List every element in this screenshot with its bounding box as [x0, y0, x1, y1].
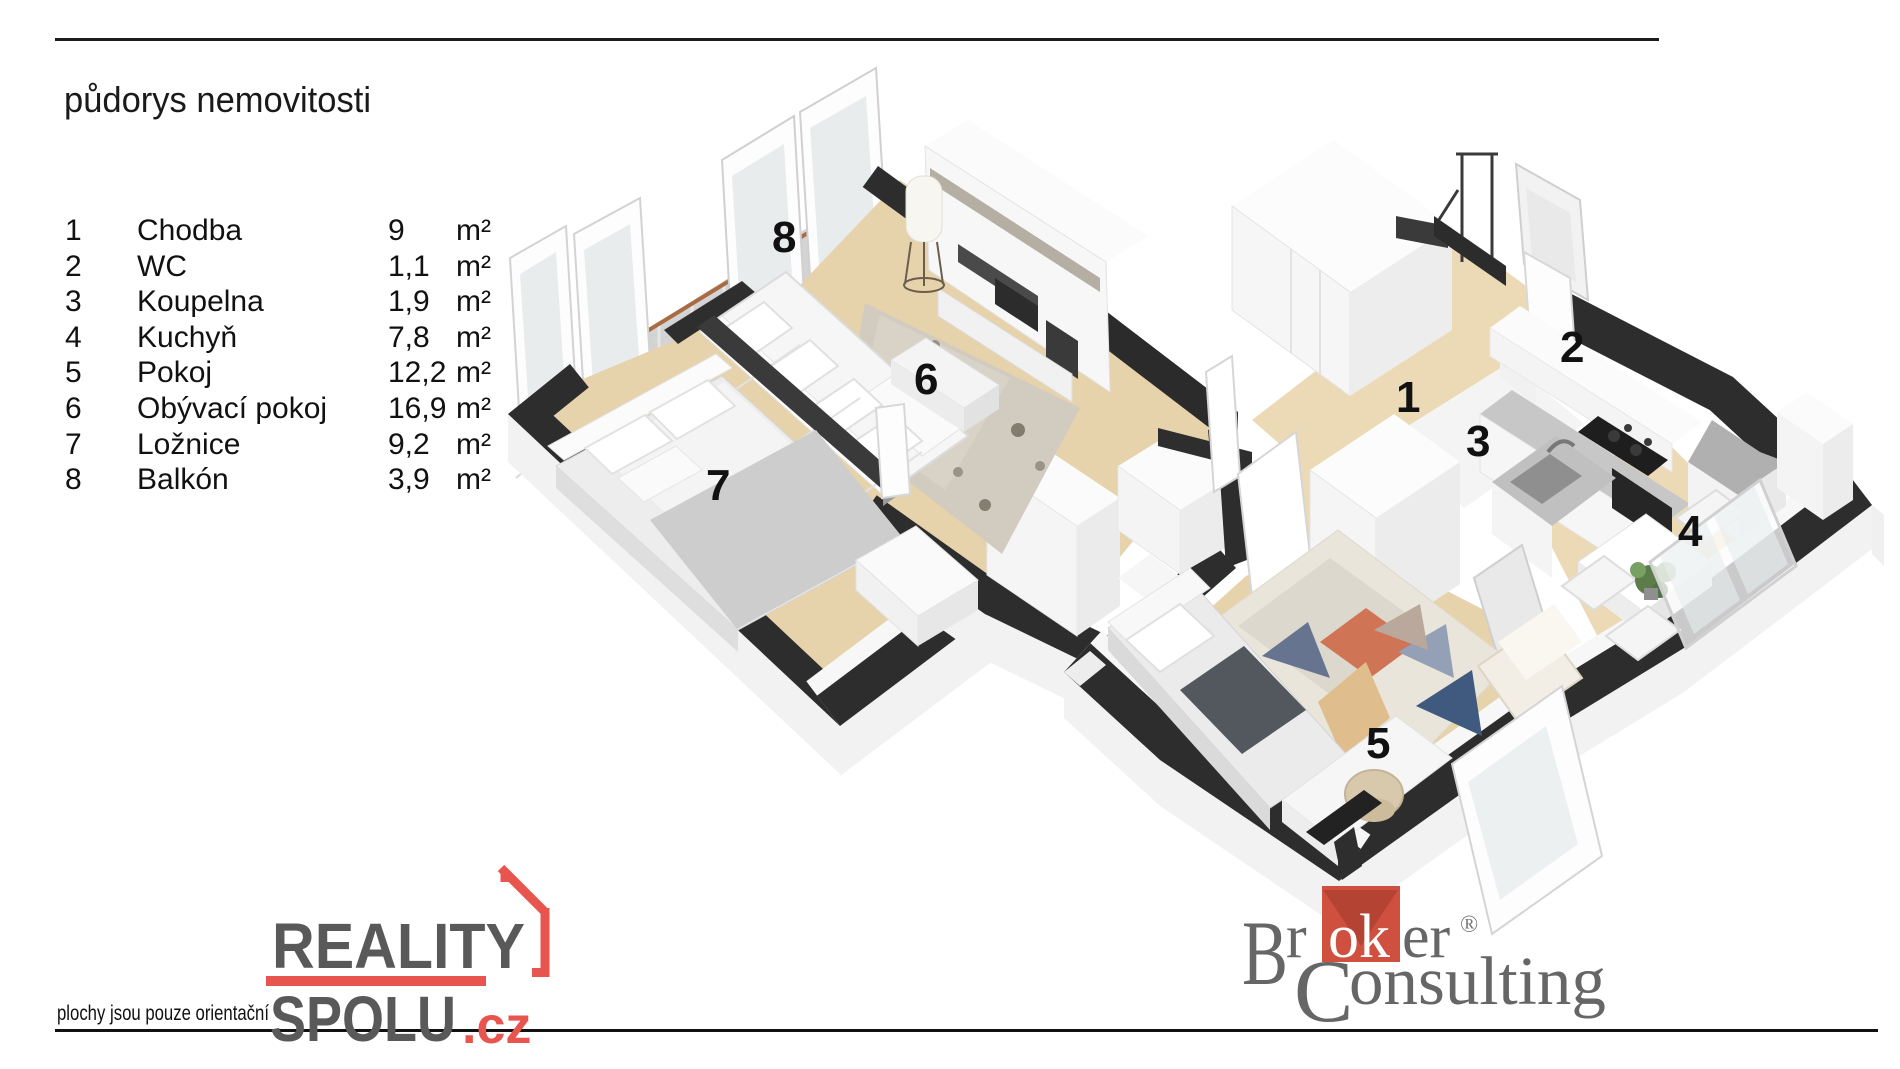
svg-text:8: 8: [772, 213, 796, 262]
svg-text:2: 2: [65, 250, 82, 283]
svg-text:1,9: 1,9: [388, 285, 430, 318]
svg-text:3,9: 3,9: [388, 463, 430, 496]
svg-text:16,9: 16,9: [388, 392, 446, 425]
svg-text:m²: m²: [456, 356, 491, 389]
svg-text:plochy jsou pouze orientační: plochy jsou pouze orientační: [57, 1002, 269, 1025]
svg-text:Ložnice: Ložnice: [137, 428, 240, 461]
svg-text:8: 8: [65, 463, 82, 496]
svg-text:7: 7: [706, 461, 730, 510]
svg-text:6: 6: [914, 355, 938, 404]
svg-text:m²: m²: [456, 250, 491, 283]
svg-text:®: ®: [1460, 912, 1478, 938]
svg-text:2: 2: [1560, 323, 1584, 372]
svg-text:m²: m²: [456, 285, 491, 318]
svg-text:REALITY: REALITY: [272, 910, 525, 982]
svg-text:m²: m²: [456, 321, 491, 354]
svg-text:m²: m²: [456, 214, 491, 247]
svg-text:9: 9: [388, 214, 405, 247]
svg-text:9,2: 9,2: [388, 428, 430, 461]
svg-text:4: 4: [1678, 507, 1703, 556]
svg-text:Balkón: Balkón: [137, 463, 229, 496]
svg-text:m²: m²: [456, 392, 491, 425]
svg-text:7,8: 7,8: [388, 321, 430, 354]
svg-text:onsulting: onsulting: [1349, 943, 1606, 1019]
svg-text:1,1: 1,1: [388, 250, 430, 283]
svg-text:3: 3: [65, 285, 82, 318]
svg-text:Koupelna: Koupelna: [137, 285, 264, 318]
svg-text:půdorys nemovitosti: půdorys nemovitosti: [64, 79, 371, 120]
svg-text:WC: WC: [137, 250, 187, 283]
svg-text:1: 1: [65, 214, 82, 247]
svg-text:12,2: 12,2: [388, 356, 446, 389]
svg-text:4: 4: [65, 321, 82, 354]
svg-text:C: C: [1294, 943, 1353, 1041]
svg-text:.cz: .cz: [462, 997, 531, 1055]
svg-text:7: 7: [65, 428, 82, 461]
svg-text:B: B: [1242, 902, 1288, 1004]
svg-text:m²: m²: [456, 428, 491, 461]
svg-text:6: 6: [65, 392, 82, 425]
svg-text:3: 3: [1466, 417, 1490, 466]
svg-text:Kuchyň: Kuchyň: [137, 321, 237, 354]
svg-text:Chodba: Chodba: [137, 214, 242, 247]
svg-text:1: 1: [1396, 373, 1420, 422]
svg-text:m²: m²: [456, 463, 491, 496]
svg-text:SPOLU: SPOLU: [270, 983, 456, 1055]
svg-text:Obývací pokoj: Obývací pokoj: [137, 392, 327, 425]
svg-text:Pokoj: Pokoj: [137, 356, 212, 389]
svg-text:5: 5: [65, 356, 82, 389]
svg-text:5: 5: [1366, 719, 1390, 768]
